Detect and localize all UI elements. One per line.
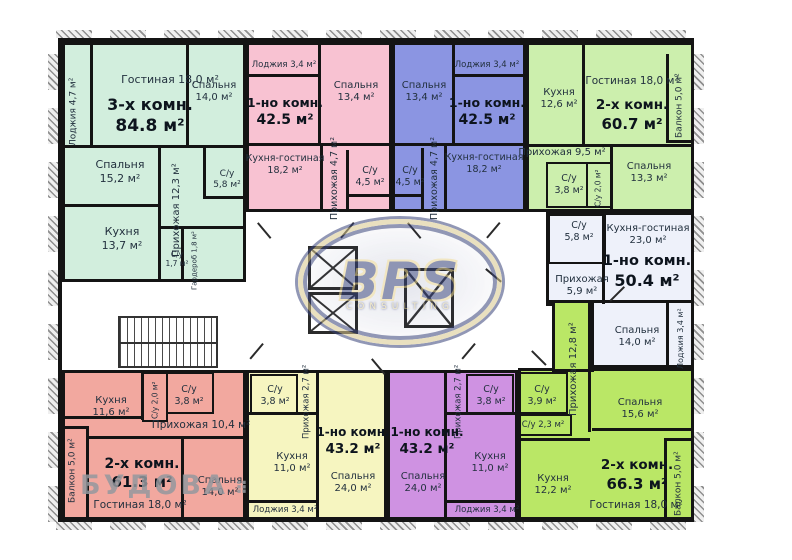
wall [88, 436, 246, 439]
room-label-line: Кухня [276, 451, 308, 464]
room-label-line: 11,0 м² [274, 463, 311, 476]
room-label: Спальня13,4 м² [322, 76, 390, 108]
room-label-line: 11,6 м² [93, 407, 130, 420]
room-label: Гостиная 18,0 м² [94, 498, 186, 514]
room-label: Спальня24,0 м² [388, 466, 458, 500]
apartment-type: 2-х комн. [601, 457, 673, 475]
room-label: Кухня11,6 м² [74, 390, 148, 424]
wall [90, 42, 93, 148]
room-label-line: 12,2 м² [535, 485, 572, 498]
apartment-total-area: 50.4 м² [614, 271, 679, 292]
staircase [118, 316, 218, 368]
apartment-title: 2-х комн.61.3 м² [94, 452, 190, 496]
room-label-line: Спальня [402, 80, 447, 93]
room-label-line: Спальня [96, 158, 145, 172]
room-label: С/у5,8 м² [206, 164, 248, 196]
apartment-total-area: 42.5 м² [459, 111, 516, 129]
room-label-line: 13,4 м² [338, 92, 375, 105]
room-label-line: 3,8 м² [554, 185, 583, 197]
elevator-shaft [404, 268, 454, 328]
apartment-type: 1-но комн. [247, 95, 323, 111]
room-label-line: Прихожая 9,5 м² [518, 147, 605, 160]
wall [203, 196, 246, 199]
room-label-line: Спальня [401, 471, 446, 484]
room-label-line: 18,2 м² [466, 164, 501, 176]
room-label-line: 15,6 м² [622, 409, 659, 422]
room-label: Кухня13,7 м² [74, 222, 170, 256]
room-label: С/у4,5 м² [348, 160, 392, 194]
room-label: Прихожая 4,7 м² [322, 148, 348, 210]
apartment-type: 3-х комн. [107, 95, 193, 116]
room-label-line: Лоджия 3,4 м² [253, 505, 318, 516]
room-label: Лоджия 3,4 м² [246, 503, 324, 517]
room-label-line: С/у [171, 250, 183, 259]
room-label: С/у5,8 м² [556, 216, 602, 248]
room-label-line: 3,8 м² [260, 396, 289, 408]
apartment-total-area: 43.2 м² [326, 441, 381, 459]
wall [454, 74, 524, 77]
room-label: Спальня15,6 м² [604, 392, 676, 426]
room-label: С/у3,8 м² [252, 380, 298, 412]
room-label: Лоджия 3,4 м² [450, 58, 524, 72]
room-label-line: 4,5 м² [355, 177, 384, 189]
room-label: С/у 2,0 м² [144, 376, 166, 424]
exterior-wall-left [48, 38, 58, 522]
room-label-line: Спальня [618, 397, 663, 410]
room-label-line: 15,2 м² [100, 172, 141, 186]
wall [346, 194, 392, 197]
room-label-line: Спальня [331, 471, 376, 484]
room-label-line: Кухня [105, 225, 140, 239]
room-label-line: Лоджия 3,4 м² [455, 505, 520, 516]
apartment-type: 2-х комн. [596, 97, 668, 115]
room-label: С/у3,8 м² [166, 380, 212, 412]
apartment-title: 2-х комн.60.7 м² [592, 90, 672, 142]
room-label-line: Спальня [198, 475, 243, 488]
room-label-line: Кухня [474, 451, 506, 464]
wall [392, 194, 423, 197]
room-label-line: С/у [571, 220, 586, 232]
apartment-total-area: 61.3 м² [111, 473, 172, 493]
room-label: Балкон 5,0 м² [58, 432, 88, 510]
room-label: С/у3,9 м² [518, 380, 566, 412]
room-label: Кухня12,2 м² [518, 468, 588, 502]
wall [62, 426, 88, 429]
apartment-total-area: 43.2 м² [400, 441, 455, 459]
wall [246, 143, 392, 146]
room-label: Лоджия 3,4 м² [668, 308, 694, 370]
wall [518, 438, 590, 441]
room-label: Кухня-гостиная18,2 м² [246, 148, 324, 182]
apartment-type: 2-х комн. [104, 455, 179, 473]
room-label-line: 13,7 м² [102, 239, 143, 253]
wall [588, 300, 591, 432]
room-label: Лоджия 3,4 м² [448, 503, 526, 517]
room-label-line: 12,6 м² [541, 99, 578, 112]
room-label: Спальня14,0 м² [600, 320, 674, 354]
room-label: Лоджия 4,7 м² [58, 66, 90, 158]
room-label-line: С/у 2,3 м² [522, 420, 565, 431]
room-label-line: С/у [402, 165, 417, 177]
room-label-line: 18,2 м² [267, 165, 302, 177]
apartment-type: 1-но комн. [390, 425, 463, 441]
room-label-line: Спальня [334, 80, 379, 93]
apartment-total-area: 66.3 м² [606, 475, 667, 495]
apartment-type: 1-но комн. [316, 425, 389, 441]
apartment-title: 1-но комн.43.2 м² [314, 418, 392, 466]
room-label: Кухня12,6 м² [524, 82, 594, 116]
room-label: Гостиная 18,0 м² [592, 74, 672, 90]
wall [592, 428, 694, 431]
room-label: Спальня24,0 м² [318, 466, 388, 500]
room-label-line: С/у [220, 169, 235, 180]
wall [664, 438, 694, 441]
room-label-line: Кухня-гостиная [445, 152, 524, 164]
room-label: Спальня14,0 м² [188, 470, 252, 504]
room-label-line: 3,8 м² [476, 396, 505, 408]
room-label-line: С/у [561, 173, 576, 185]
room-label-line: С/у [483, 384, 498, 396]
room-label-line: 11,0 м² [472, 463, 509, 476]
apartment-total-area: 42.5 м² [257, 111, 314, 129]
apartment-type: 1-но комн. [449, 95, 525, 111]
room-label: С/у3,8 м² [468, 380, 514, 412]
room-label-line: 3,8 м² [174, 396, 203, 408]
room-label-line: Лоджия 3,4 м² [252, 60, 317, 71]
room-label-line: 5,8 м² [213, 180, 241, 191]
elevator-shaft [308, 246, 358, 290]
room-label: Прихожая 10,4 м² [154, 418, 248, 434]
room-label: Кухня-гостиная18,2 м² [442, 146, 526, 182]
room-label: Лоджия 3,4 м² [246, 58, 322, 72]
room-label-line: С/у [181, 384, 196, 396]
room-label-line: Кухня-гостиная [607, 223, 690, 236]
room-label-line: 14,0 м² [619, 337, 656, 350]
room-label-line: Лоджия 3,4 м² [455, 60, 520, 71]
apartment-total-area: 60.7 м² [601, 115, 662, 135]
floor-plan: Лоджия 4,7 м²Гостиная 18,0 м²Спальня14,0… [0, 0, 792, 560]
room-label-line: 14,0 м² [202, 487, 239, 500]
apartment-title: 1-но комн.42.5 м² [246, 86, 324, 138]
wall [62, 204, 160, 207]
room-label-line: С/у [362, 165, 377, 177]
room-label-line: С/у [534, 384, 549, 396]
apartment-title: 2-х комн.66.3 м² [596, 452, 678, 500]
room-label-line: Кухня [537, 473, 569, 486]
room-label-line: 3,9 м² [527, 396, 556, 408]
room-label-line: Кухня-гостиная [246, 153, 325, 165]
room-label: Гардероб 1,8 м² [184, 234, 206, 288]
room-label-line: Кухня [543, 87, 575, 100]
room-label-line: 5,9 м² [567, 286, 598, 299]
apartment-title: 1-но комн.50.4 м² [598, 246, 696, 298]
apartment-title: 1-но комн.43.2 м² [388, 418, 466, 466]
room-label-line: 24,0 м² [405, 483, 442, 496]
apartment-title: 1-но комн.42.5 м² [448, 86, 526, 138]
room-label-line: 5,8 м² [564, 232, 593, 244]
room-label-line: Гостиная 18,0 м² [585, 75, 678, 88]
room-label: С/у 2,0 м² [586, 166, 610, 210]
room-label-line: Спальня [627, 161, 672, 174]
room-label-line: 24,0 м² [335, 483, 372, 496]
apartment-type: 1-но комн. [603, 252, 691, 271]
room-label-line: 13,3 м² [631, 173, 668, 186]
room-label: Прихожая 9,5 м² [520, 146, 604, 160]
room-label-line: Гостиная 18,0 м² [93, 499, 186, 512]
room-label-line: С/у [267, 384, 282, 396]
room-label: Спальня13,4 м² [392, 76, 456, 108]
room-label: Прихожая 12,8 м² [560, 314, 588, 424]
apartment-title: 3-х комн.84.8 м² [96, 90, 204, 142]
wall [246, 74, 320, 77]
room-label-line: Прихожая 10,4 м² [152, 419, 250, 432]
elevator-shaft [308, 292, 358, 334]
room-label: С/у3,8 м² [548, 168, 590, 202]
room-label-line: 13,4 м² [406, 92, 443, 105]
room-label-line: Спальня [615, 325, 660, 338]
room-label-line: 4,5 м² [395, 177, 424, 189]
room-label: Спальня15,2 м² [72, 155, 168, 189]
room-label: Спальня13,3 м² [614, 156, 684, 190]
apartment-total-area: 84.8 м² [115, 115, 184, 137]
room-label-line: Кухня [95, 395, 127, 408]
